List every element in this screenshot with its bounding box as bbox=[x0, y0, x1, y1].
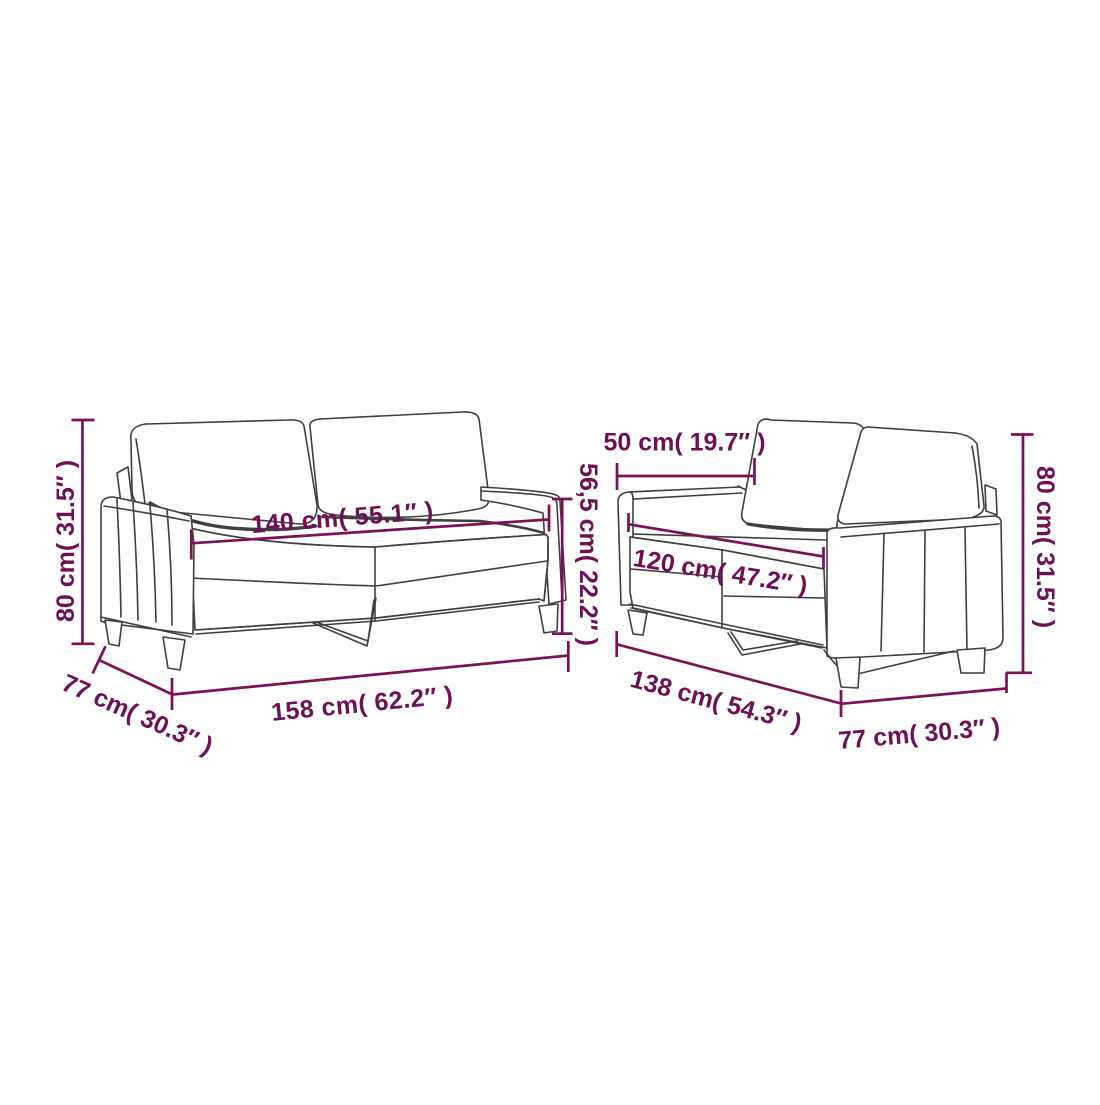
svg-text:56,5 cm( 22.2″ ): 56,5 cm( 22.2″ ) bbox=[574, 463, 602, 646]
svg-text:50 cm( 19.7″ ): 50 cm( 19.7″ ) bbox=[603, 429, 765, 457]
svg-text:80 cm( 31.5″ ): 80 cm( 31.5″ ) bbox=[1031, 466, 1059, 628]
svg-text:80 cm( 31.5″ ): 80 cm( 31.5″ ) bbox=[52, 460, 80, 622]
